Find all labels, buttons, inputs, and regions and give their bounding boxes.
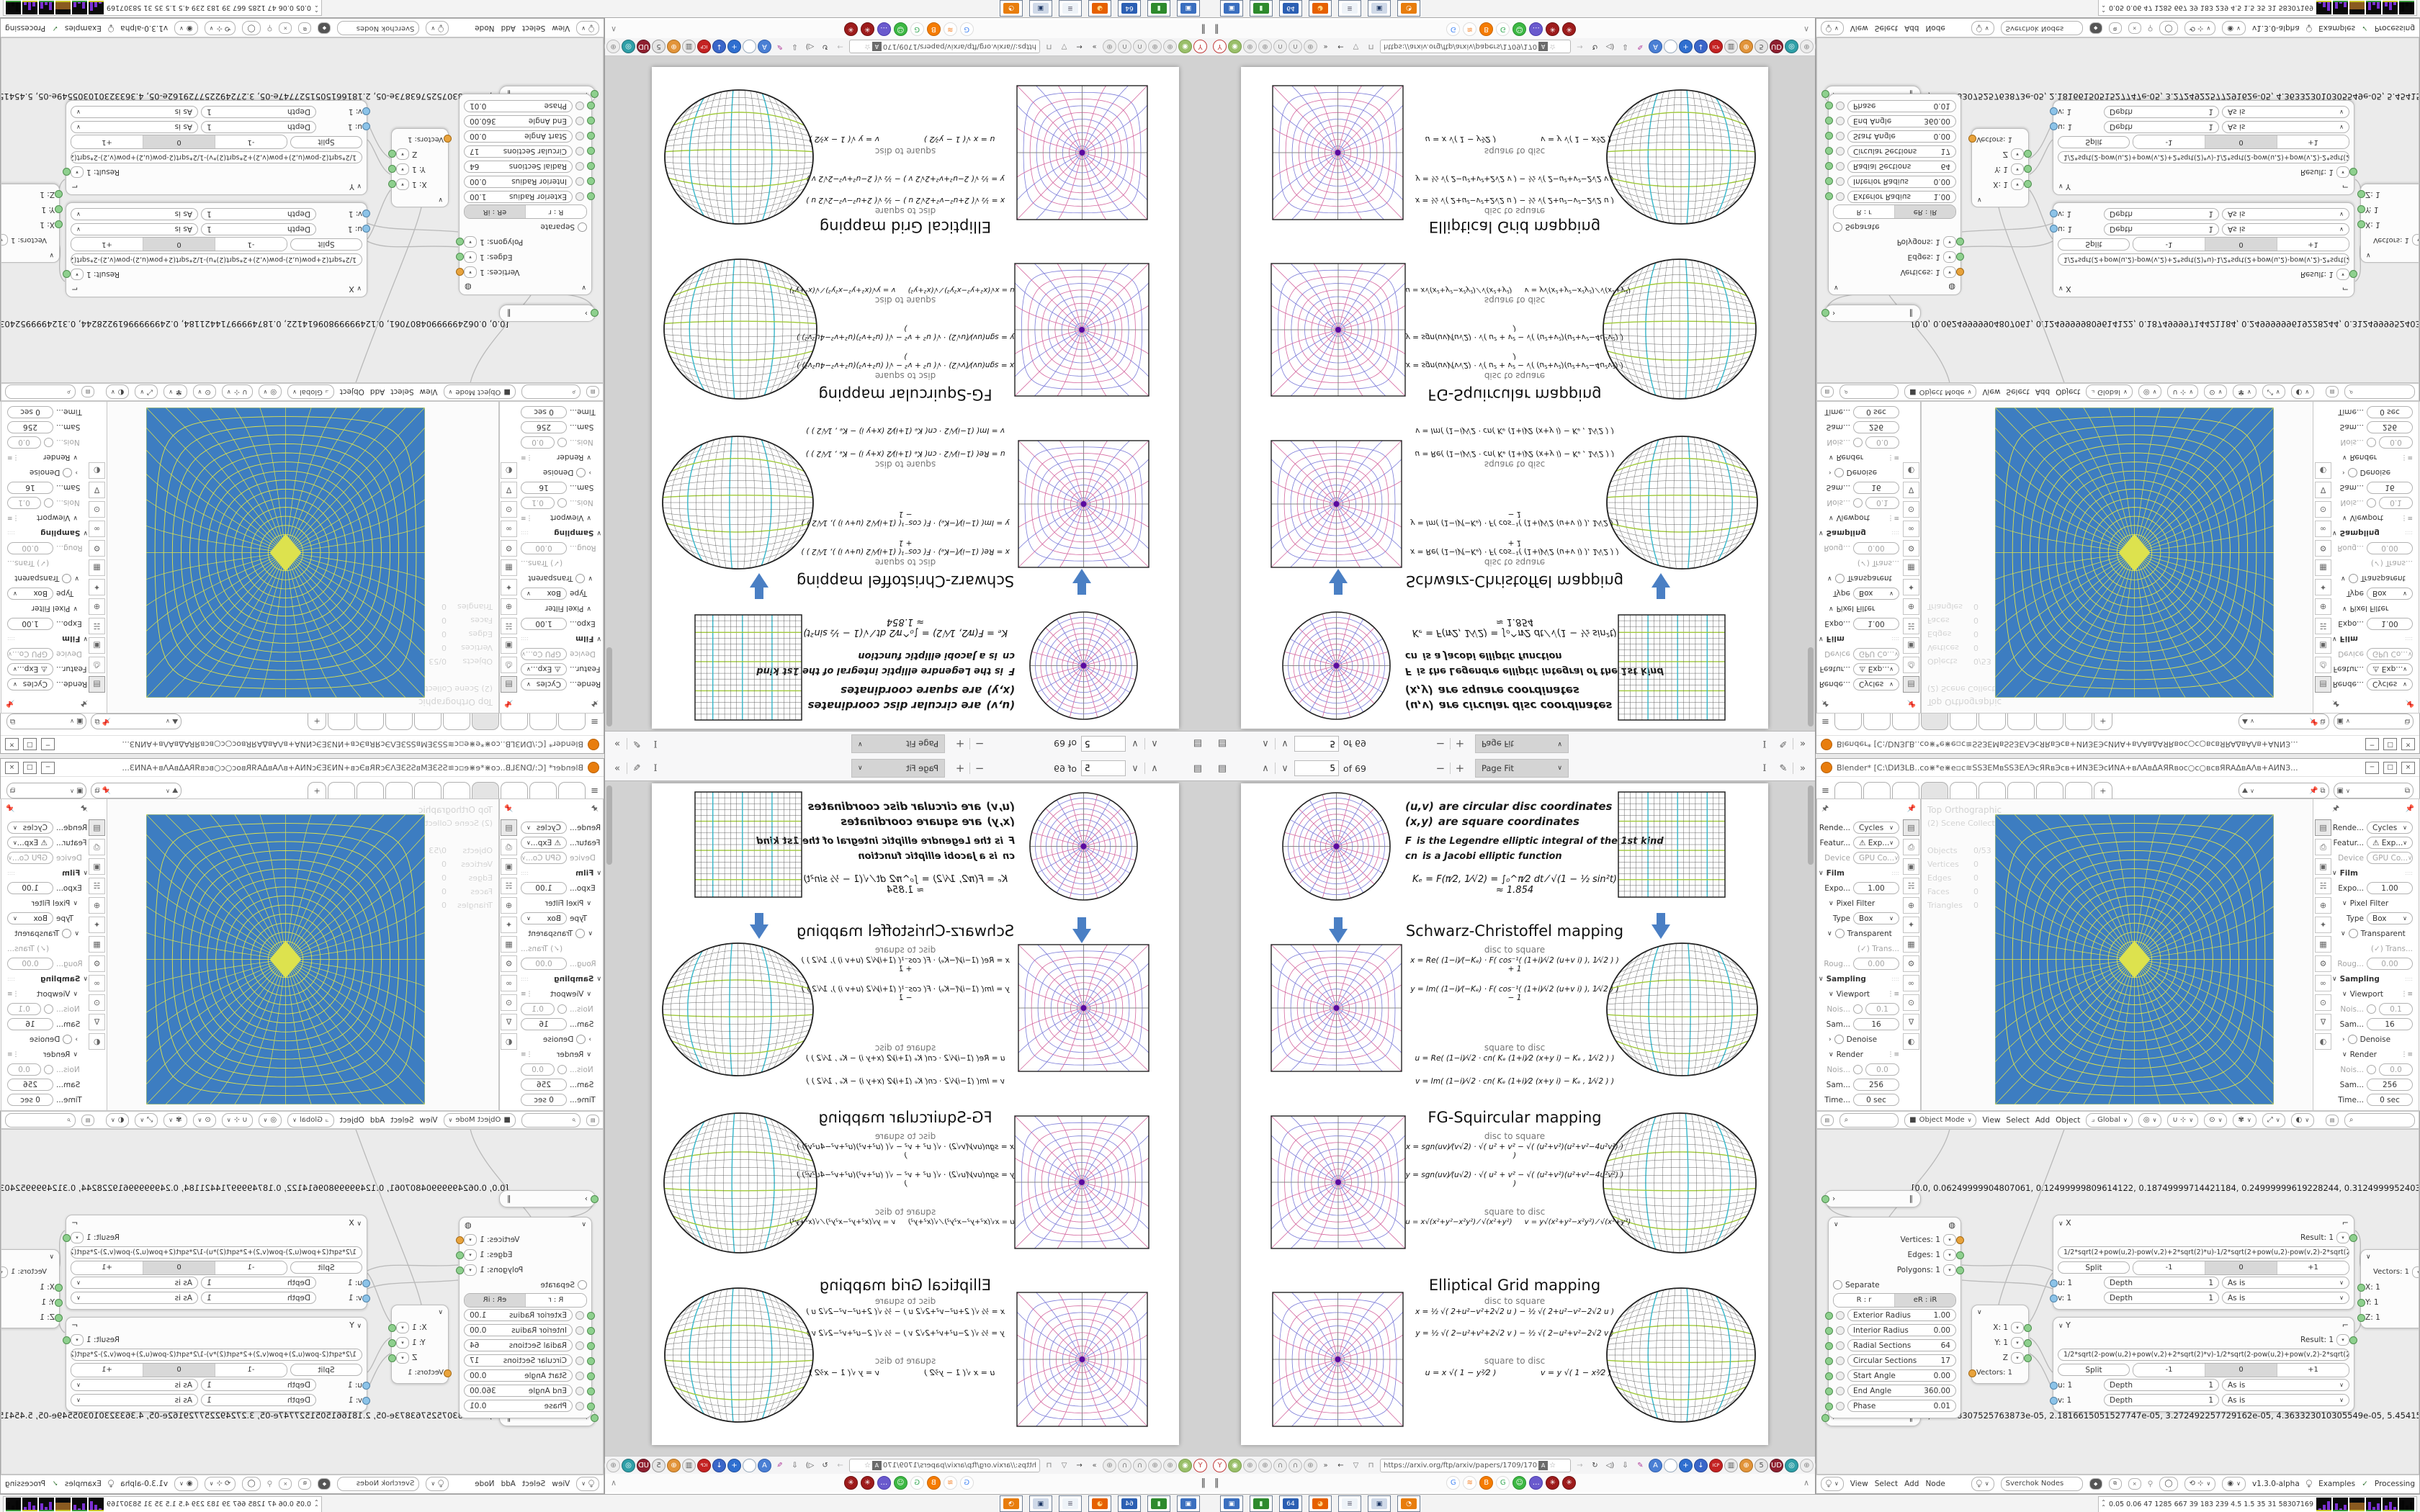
firefox-app-icon[interactable]: ◕ bbox=[1088, 0, 1111, 17]
trash-icon[interactable]: ▥ bbox=[1724, 40, 1738, 54]
annotate-tool-icon[interactable]: ✎ bbox=[1774, 760, 1793, 777]
url-bar[interactable]: https://arxiv.org/ftp/arxiv/papers/1709/… bbox=[849, 1459, 1040, 1472]
properties-tab-icon[interactable]: ∇ bbox=[501, 482, 517, 498]
prop-row-denoise[interactable]: ›Denoise bbox=[7, 465, 88, 480]
green-utility-app-icon[interactable]: ▮ bbox=[1250, 1495, 1273, 1512]
properties-tab-icon[interactable]: ▦ bbox=[1903, 936, 1919, 953]
prop-row-denoise[interactable]: ›Denoise bbox=[7, 1032, 88, 1047]
pin-icon[interactable]: ⚲ bbox=[267, 24, 273, 33]
oval-addon-icon[interactable] bbox=[743, 1459, 756, 1472]
workspace-tab[interactable] bbox=[1834, 782, 1862, 798]
reader-mode-icon[interactable]: A bbox=[1538, 42, 1548, 52]
prop-row-featur[interactable]: Featur...⚠ Exp...∨ bbox=[2332, 662, 2413, 677]
slider-end-angle[interactable]: End Angle360.00 bbox=[460, 1383, 591, 1398]
properties-tab-icon[interactable]: ⊕ bbox=[501, 897, 517, 914]
prop-row-pixelfilter[interactable]: ∨Pixel Filter bbox=[521, 601, 601, 616]
pin-icon[interactable]: 📌 bbox=[504, 805, 513, 813]
globe-gray-icon[interactable]: ⊕ bbox=[1800, 40, 1814, 54]
properties-tab-icon[interactable]: ☵ bbox=[1903, 618, 1919, 634]
collapsed-node[interactable]: ›‖ bbox=[1824, 1190, 1921, 1207]
properties-tab-icon[interactable]: ∞ bbox=[501, 975, 517, 991]
vector-in-node-right[interactable]: ∨ Vectors: 1 ▾ X: 1Y: 1Z: 1 bbox=[2360, 1249, 2419, 1328]
prop-row-render[interactable]: ∨Render⋮≡ bbox=[7, 1047, 88, 1062]
prop-row-sam[interactable]: Sam...16 bbox=[521, 480, 601, 495]
prop-row-film[interactable]: ∨Film:::: bbox=[7, 865, 88, 881]
prop-row-featur[interactable]: Featur...⚠ Exp...∨ bbox=[521, 835, 601, 850]
slider-end-angle[interactable]: End Angle360.00 bbox=[1829, 1383, 1960, 1398]
prop-row-denoise[interactable]: ›Denoise bbox=[521, 1032, 601, 1047]
zoom-in-button[interactable]: + bbox=[951, 760, 969, 777]
display-app-icon[interactable]: ▣ bbox=[1177, 1495, 1200, 1512]
workspace-tab[interactable] bbox=[1921, 782, 1948, 798]
prop-row-transparent[interactable]: ∨Transparent bbox=[1819, 571, 1899, 586]
vector-in-node-right[interactable]: ∨ Vectors: 1 ▾ X: 1Y: 1Z: 1 bbox=[1, 184, 60, 263]
workspace-tab[interactable] bbox=[357, 782, 384, 798]
prop-row-nois[interactable]: Nois...0.0 bbox=[521, 1062, 601, 1077]
slider-start-angle[interactable]: Start Angle0.00 bbox=[460, 1368, 591, 1383]
orientation-selector[interactable]: ⟓ Global∨ bbox=[287, 385, 334, 400]
vector-input[interactable]: Z: 1 bbox=[1, 187, 59, 202]
gizmo-toggle[interactable]: ✾∨ bbox=[2233, 385, 2256, 400]
prop-row-denoise[interactable]: ›Denoise bbox=[1819, 465, 1899, 480]
blender-title-bar[interactable]: Blender* [C:\DИЗLB..cо⋇*е⋇е▫c≋SSЗEMвSSЗE… bbox=[1816, 735, 2419, 753]
orientation-selector[interactable]: ⟓ Global∨ bbox=[2086, 385, 2133, 400]
chat-bookmark-icon[interactable]: … bbox=[877, 22, 891, 36]
shading-toggle[interactable]: ◐∨ bbox=[2291, 1113, 2315, 1128]
prop-row-sampling[interactable]: ∨Sampling:::: bbox=[521, 971, 601, 986]
pin-icon[interactable]: ⚲ bbox=[267, 1480, 273, 1488]
headset-icon[interactable]: ∩ bbox=[1133, 1459, 1147, 1472]
globe-icon-3[interactable]: ⊕ bbox=[1103, 40, 1116, 54]
globe-icon-2[interactable]: ⊕ bbox=[1148, 1459, 1162, 1472]
properties-tab-icon[interactable]: ⊙ bbox=[2315, 994, 2331, 1011]
proportional-edit-toggle[interactable]: ⊙∨ bbox=[193, 1113, 216, 1128]
shield-icon[interactable]: ▽ bbox=[1349, 1459, 1363, 1472]
prop-row-time[interactable]: Time...0 sec bbox=[521, 405, 601, 420]
zoom-select[interactable]: Page Fit∨ bbox=[1475, 734, 1569, 753]
prop-row-sampling[interactable]: ∨Sampling:::: bbox=[2332, 971, 2413, 986]
prop-row-type[interactable]: TypeBox∨ bbox=[7, 911, 88, 926]
fake-user-icon[interactable]: ◆ bbox=[2089, 23, 2102, 35]
search-field[interactable]: ⌕ bbox=[2344, 385, 2415, 400]
prop-row-sam[interactable]: Sam...256 bbox=[1819, 420, 1899, 435]
brush-icon[interactable]: ✎ bbox=[1633, 1459, 1647, 1472]
system-monitor-tray[interactable]: ⌃⌃ 0.05 0.06 47 1285 667 39 183 239 4.5 … bbox=[3, 1496, 322, 1512]
node-output-polygons[interactable]: Polygons: 1▾ bbox=[460, 1262, 591, 1277]
slider-exterior-radius[interactable]: Exterior Radius1.00 bbox=[460, 189, 591, 204]
copy-icon[interactable]: ⧉ bbox=[2109, 23, 2122, 35]
prop-row-denoise[interactable]: ›Denoise bbox=[2332, 1032, 2413, 1047]
prop-row-device[interactable]: DeviceGPU Co...∨ bbox=[7, 850, 88, 865]
bookmark-star-icon[interactable]: ☆ bbox=[1549, 43, 1556, 51]
prop-row-sam[interactable]: Sam...16 bbox=[2332, 1017, 2413, 1032]
system-monitor-tray[interactable]: ⌃⌃ 0.05 0.06 47 1285 667 39 183 239 4.5 … bbox=[3, 0, 322, 16]
collapsed-node[interactable]: ›‖ bbox=[1824, 305, 1921, 322]
prop-row-rende[interactable]: Rende...Cycles∨ bbox=[7, 677, 88, 692]
green-utility-app-icon[interactable]: ▮ bbox=[1147, 1495, 1170, 1512]
prop-row-nois[interactable]: Nois...0.1 bbox=[521, 495, 601, 510]
prop-row-sampling[interactable]: ∨Sampling:::: bbox=[7, 971, 88, 986]
vector-in-node[interactable]: ∨ X: 1▾Y: 1▾Z▾ Vectors: 1 bbox=[391, 128, 449, 207]
workspace-tab[interactable] bbox=[443, 782, 470, 798]
properties-tab-icon[interactable]: ✦ bbox=[501, 579, 517, 595]
prop-row-render[interactable]: ∨Render⋮≡ bbox=[2332, 1047, 2413, 1062]
menu-view[interactable]: View bbox=[420, 1116, 438, 1125]
properties-tab-icon[interactable]: ✦ bbox=[2315, 917, 2331, 933]
snap-icon[interactable]: ⟲ ⊹∨ bbox=[205, 22, 236, 36]
collapse-chevron-icon[interactable]: ∧ bbox=[1803, 24, 1809, 34]
slider-exterior-radius[interactable]: Exterior Radius1.00 bbox=[1829, 189, 1960, 204]
menu-add[interactable]: Add bbox=[501, 24, 516, 33]
minimize-button[interactable]: ─ bbox=[41, 739, 55, 751]
gear-flower-icon-2[interactable]: ✳ bbox=[1562, 1476, 1576, 1490]
properties-tab-icon[interactable]: ⚙ bbox=[501, 955, 517, 972]
globe-orange-icon[interactable]: ⊕ bbox=[667, 40, 681, 54]
green-addon-icon[interactable]: ◉ bbox=[1228, 1459, 1242, 1472]
properties-tab-icon[interactable]: ◐ bbox=[2315, 462, 2331, 479]
properties-tab-icon[interactable]: ▤ bbox=[1903, 676, 1919, 693]
text-select-tool-icon[interactable]: I bbox=[646, 735, 665, 752]
copy-icon[interactable]: ⧉ bbox=[94, 787, 99, 795]
prop-row-time[interactable]: Time...0 sec bbox=[7, 405, 88, 420]
slider-exterior-radius[interactable]: Exterior Radius1.00 bbox=[460, 1308, 591, 1323]
torus-mode-switch[interactable]: R : r eR : iR bbox=[464, 205, 587, 220]
properties-tab-icon[interactable]: ▣ bbox=[2315, 637, 2331, 654]
menu-view[interactable]: View bbox=[552, 1480, 570, 1488]
add-workspace-tab[interactable]: + bbox=[2094, 782, 2112, 798]
prop-row-device[interactable]: DeviceGPU Co...∨ bbox=[521, 647, 601, 662]
speaker-icon[interactable]: ◁) bbox=[803, 1459, 817, 1472]
prop-row-time[interactable]: Time...0 sec bbox=[521, 1092, 601, 1107]
prop-row-viewport[interactable]: ∨Viewport⋮≡ bbox=[521, 986, 601, 1002]
vector-input[interactable]: Y: 1 bbox=[1, 202, 59, 217]
zoom-in-button[interactable]: + bbox=[1451, 760, 1469, 777]
properties-tab-icon[interactable]: ⊙ bbox=[2315, 501, 2331, 518]
translate-icon[interactable]: A bbox=[758, 1459, 771, 1472]
window-app-icon[interactable]: ▣ bbox=[1368, 0, 1391, 17]
prop-row-featur[interactable]: Featur...⚠ Exp...∨ bbox=[2332, 835, 2413, 850]
workspace-tab[interactable] bbox=[385, 782, 413, 798]
tree-select-icon[interactable]: ⧬∨ bbox=[426, 1477, 449, 1491]
smiley-bookmark-icon[interactable]: ☺ bbox=[1512, 1476, 1526, 1490]
ud-shield-icon[interactable]: UD bbox=[637, 40, 650, 54]
oval-addon-icon[interactable] bbox=[1664, 1459, 1677, 1472]
formula-node-y[interactable]: ∨ Y⌐Result: 1▾1/2*sqrt(2-pow(u,2)+pow(v,… bbox=[2053, 100, 2354, 195]
slider-phase[interactable]: Phase0.01 bbox=[1829, 99, 1960, 114]
overlays-toggle[interactable]: ⤢∨ bbox=[2262, 1113, 2285, 1128]
torus-node[interactable]: ∨◍ Vertices: 1▾Edges: 1▾Polygons: 1▾ Sep… bbox=[459, 94, 592, 295]
teal-addon-icon[interactable]: ◎ bbox=[622, 1459, 635, 1472]
window-app-icon[interactable]: ▣ bbox=[1368, 1495, 1391, 1512]
properties-tab-icon[interactable]: ▣ bbox=[89, 858, 105, 875]
properties-tab-icon[interactable]: ⎙ bbox=[501, 657, 517, 673]
prop-row-pixelfilter[interactable]: ∨Pixel Filter bbox=[7, 896, 88, 911]
translate-icon[interactable]: A bbox=[1649, 1459, 1662, 1472]
vector-input[interactable]: X: 1 bbox=[2361, 217, 2419, 233]
firefox-app-icon[interactable]: ◕ bbox=[1309, 1495, 1332, 1512]
prop-row-trans[interactable]: (✓) Trans... bbox=[1819, 941, 1899, 956]
slider-start-angle[interactable]: Start Angle0.00 bbox=[1829, 1368, 1960, 1383]
pivot-selector[interactable]: ◎∨ bbox=[259, 385, 282, 400]
prop-row-type[interactable]: TypeBox∨ bbox=[7, 586, 88, 601]
pin-icon[interactable]: 📌 bbox=[2406, 699, 2414, 707]
add-workspace-tab[interactable]: + bbox=[308, 714, 326, 730]
properties-tab-icon[interactable]: ▤ bbox=[501, 819, 517, 836]
globe-icon[interactable]: ⊕ bbox=[1243, 1459, 1257, 1472]
view-layer-selector[interactable]: ▣∨ ⧉ bbox=[6, 714, 86, 729]
prop-row-nois[interactable]: Nois...0.0 bbox=[1819, 435, 1899, 450]
properties-tab-icon[interactable]: ∇ bbox=[89, 482, 105, 498]
vector-in-input[interactable]: Y: 1▾ bbox=[1972, 162, 2028, 177]
menu-select[interactable]: Select bbox=[522, 1480, 545, 1488]
properties-tab-icon[interactable]: ◐ bbox=[501, 1033, 517, 1050]
workspace-tab[interactable] bbox=[1921, 714, 1948, 730]
vector-in-input[interactable]: Z▾ bbox=[392, 1350, 448, 1365]
sverchok-node-editor[interactable]: [0.0, 0.06249999904807061, 0.12499999809… bbox=[1, 37, 604, 383]
down-addon-icon[interactable]: ↓ bbox=[712, 1459, 726, 1472]
editor-type-icon[interactable]: ▤ bbox=[81, 1115, 94, 1126]
examples-menu[interactable]: Examples bbox=[65, 24, 102, 33]
search-field[interactable]: ⌕ bbox=[521, 1113, 581, 1128]
globe-icon[interactable]: ⊕ bbox=[1163, 1459, 1177, 1472]
page-number-input[interactable] bbox=[1294, 736, 1339, 752]
node-output-edges[interactable]: Edges: 1▾ bbox=[1829, 250, 1960, 265]
workspace-tab[interactable] bbox=[529, 782, 557, 798]
prop-row-viewport[interactable]: ∨Viewport⋮≡ bbox=[7, 510, 88, 526]
down-addon-icon[interactable]: ↓ bbox=[1694, 1459, 1708, 1472]
prop-row-transparent[interactable]: ∨Transparent bbox=[7, 926, 88, 941]
workspace-tab[interactable] bbox=[1950, 782, 1977, 798]
menu-select[interactable]: Select bbox=[1875, 1480, 1898, 1488]
properties-tab-icon[interactable]: ⊙ bbox=[89, 501, 105, 518]
blogger-bookmark-icon[interactable]: B bbox=[927, 1476, 941, 1490]
globe-icon-3[interactable]: ⊕ bbox=[1103, 1459, 1116, 1472]
pause-icon[interactable]: ‖ bbox=[1201, 1477, 1206, 1488]
shield-icon[interactable]: ▽ bbox=[1057, 1459, 1071, 1472]
prop-row-nois[interactable]: Nois...0.1 bbox=[7, 1002, 88, 1017]
vector-input[interactable]: Z: 1 bbox=[2361, 187, 2419, 202]
properties-tab-icon[interactable]: ⊙ bbox=[89, 994, 105, 1011]
globe-gray-icon[interactable]: ⊕ bbox=[606, 40, 620, 54]
reader-mode-icon[interactable]: A bbox=[1538, 1461, 1548, 1470]
ud-shield-icon[interactable]: UD bbox=[637, 1459, 650, 1472]
workspace-tab[interactable] bbox=[1863, 714, 1891, 730]
bookmark-star-icon[interactable]: ☆ bbox=[864, 1462, 871, 1470]
properties-tab-icon[interactable]: ∇ bbox=[2315, 482, 2331, 498]
workspace-tab[interactable] bbox=[1834, 714, 1862, 730]
minimize-button[interactable]: ─ bbox=[2365, 739, 2379, 751]
properties-tab-icon[interactable]: ⚙ bbox=[501, 540, 517, 557]
overlay-icon[interactable]: ◉∨ bbox=[174, 22, 198, 36]
scene-selector[interactable]: ⛰∨ 📌 ⧉ bbox=[2238, 783, 2329, 798]
prop-row-render[interactable]: ∨Render⋮≡ bbox=[1819, 1047, 1899, 1062]
overflow-icon[interactable]: » bbox=[1319, 40, 1332, 54]
prop-row-featur[interactable]: Featur...⚠ Exp...∨ bbox=[1819, 662, 1899, 677]
collapse-chevron-icon[interactable]: ∧ bbox=[611, 1478, 617, 1488]
overlays-toggle[interactable]: ⤢∨ bbox=[135, 1113, 158, 1128]
node-output-polygons[interactable]: Polygons: 1▾ bbox=[1829, 235, 1960, 250]
properties-tab-icon[interactable]: ⊕ bbox=[2315, 897, 2331, 914]
down-addon-icon[interactable]: ↓ bbox=[1694, 40, 1708, 54]
smiley-bookmark-icon[interactable]: ☺ bbox=[894, 1476, 907, 1490]
trash-icon[interactable]: ▥ bbox=[682, 40, 696, 54]
editor-type-icon[interactable]: ⧬∨ bbox=[1821, 1477, 1844, 1491]
overlay-icon[interactable]: ◉∨ bbox=[2222, 1477, 2246, 1491]
snap-icon[interactable]: ⟲ ⊹∨ bbox=[2184, 22, 2216, 36]
prop-row-sam[interactable]: Sam...16 bbox=[1819, 1017, 1899, 1032]
prop-row-sampling[interactable]: ∨Sampling:::: bbox=[2332, 526, 2413, 541]
close-button[interactable]: × bbox=[5, 739, 19, 751]
prop-row-transparent[interactable]: ∨Transparent bbox=[521, 926, 601, 941]
headset-icon-2[interactable]: ∩ bbox=[1118, 1459, 1131, 1472]
menu-object[interactable]: Object bbox=[2056, 1116, 2080, 1125]
back-icon[interactable]: ← bbox=[1072, 40, 1086, 54]
zoom-out-button[interactable]: − bbox=[1431, 735, 1450, 752]
globe-icon-2[interactable]: ⊕ bbox=[1258, 40, 1272, 54]
prop-row-expo[interactable]: Expo...1.00 bbox=[7, 881, 88, 896]
editor-type-icon[interactable]: ⧬∨ bbox=[1821, 22, 1844, 36]
properties-tab-icon[interactable]: ∞ bbox=[2315, 521, 2331, 537]
y-pin-icon[interactable]: Y bbox=[1213, 40, 1227, 54]
headset-icon[interactable]: ∩ bbox=[1273, 40, 1287, 54]
minimize-button[interactable]: ─ bbox=[41, 762, 55, 774]
prop-row-pixelfilter[interactable]: ∨Pixel Filter bbox=[2332, 896, 2413, 911]
overflow-icon[interactable]: » bbox=[1088, 40, 1101, 54]
blender-title-bar[interactable]: Blender* [C:\DИЗLB..cо⋇*е⋇е▫c≋SSЗEMвSSЗE… bbox=[1, 759, 604, 777]
tree-select-icon[interactable]: ⧬∨ bbox=[1971, 1477, 1994, 1491]
workspace-tab[interactable] bbox=[328, 714, 355, 730]
properties-tab-icon[interactable]: ⊕ bbox=[1903, 897, 1919, 914]
notepad-app-icon[interactable]: ≣ bbox=[1338, 1495, 1361, 1512]
add-workspace-tab[interactable]: + bbox=[2094, 714, 2112, 730]
gear-flower-icon-2[interactable]: ✳ bbox=[844, 1476, 858, 1490]
copy-icon[interactable]: ⧉ bbox=[2109, 1478, 2122, 1490]
workspace-tab[interactable] bbox=[414, 714, 442, 730]
zoom-out-button[interactable]: − bbox=[1431, 760, 1450, 777]
examples-menu[interactable]: Examples bbox=[2318, 1480, 2355, 1488]
menu-node[interactable]: Node bbox=[475, 24, 494, 33]
icp-addon-icon[interactable]: ICP bbox=[1709, 1459, 1723, 1472]
icp-addon-icon[interactable]: ICP bbox=[1709, 40, 1723, 54]
sverchok-node-editor[interactable]: [0.0, 0.06249999904807061, 0.12499999809… bbox=[1, 1129, 604, 1475]
close-button[interactable]: × bbox=[5, 762, 19, 774]
sverchok-node-editor[interactable]: [0.0, 0.06249999904807061, 0.12499999809… bbox=[1816, 37, 2419, 383]
prop-row-device[interactable]: DeviceGPU Co...∨ bbox=[2332, 850, 2413, 865]
prop-row-viewport[interactable]: ∨Viewport⋮≡ bbox=[1819, 510, 1899, 526]
prop-row-rende[interactable]: Rende...Cycles∨ bbox=[1819, 820, 1899, 835]
menu-add[interactable]: Add bbox=[370, 1116, 385, 1125]
menu-add[interactable]: Add bbox=[2035, 1116, 2050, 1125]
mode-selector[interactable]: ■ Object Mode∨ bbox=[1904, 385, 1976, 400]
prop-row-transparent[interactable]: ∨Transparent bbox=[2332, 571, 2413, 586]
y-pin-icon[interactable]: Y bbox=[1213, 1459, 1227, 1472]
translate-icon[interactable]: A bbox=[1649, 40, 1662, 54]
shield-icon[interactable]: ▽ bbox=[1057, 40, 1071, 54]
prop-row-trans[interactable]: (✓) Trans... bbox=[7, 941, 88, 956]
pivot-selector[interactable]: ◎∨ bbox=[2138, 1113, 2162, 1128]
properties-tab-icon[interactable]: ☵ bbox=[1903, 878, 1919, 894]
properties-tab-icon[interactable]: ⊕ bbox=[89, 897, 105, 914]
google2-bookmark-icon[interactable]: G bbox=[1496, 22, 1510, 36]
properties-tab-icon[interactable]: ⚙ bbox=[89, 540, 105, 557]
copy-icon[interactable]: ⧉ bbox=[2320, 787, 2325, 795]
blogger-bookmark-icon[interactable]: B bbox=[927, 22, 941, 36]
vector-input[interactable]: Y: 1 bbox=[2361, 1295, 2419, 1310]
y-pin-icon[interactable]: Y bbox=[1193, 1459, 1207, 1472]
vector-in-node-right[interactable]: ∨ Vectors: 1 ▾ X: 1Y: 1Z: 1 bbox=[2360, 184, 2419, 263]
slider-phase[interactable]: Phase0.01 bbox=[460, 99, 591, 114]
node-output-vertices[interactable]: Vertices: 1▾ bbox=[460, 1232, 591, 1247]
slider-interior-radius[interactable]: Interior Radius0.00 bbox=[460, 1323, 591, 1338]
overlays-toggle[interactable]: ⤢∨ bbox=[135, 385, 158, 400]
properties-tab-icon[interactable]: ◐ bbox=[501, 462, 517, 479]
slider-phase[interactable]: Phase0.01 bbox=[460, 1398, 591, 1413]
prop-row-sam[interactable]: Sam...16 bbox=[2332, 480, 2413, 495]
bookmark-star-icon[interactable]: ☆ bbox=[864, 43, 871, 51]
back-icon[interactable]: ← bbox=[1072, 1459, 1086, 1472]
reroute-icon[interactable]: ◯ bbox=[2159, 1477, 2177, 1491]
workspace-tab[interactable] bbox=[443, 714, 470, 730]
prop-row-denoise[interactable]: ›Denoise bbox=[2332, 465, 2413, 480]
ud-shield-icon[interactable]: UD bbox=[1770, 1459, 1783, 1472]
shading-toggle[interactable]: ◐∨ bbox=[106, 385, 130, 400]
editor-type-icon[interactable]: ▤ bbox=[2326, 387, 2339, 398]
prop-row-pixelfilter[interactable]: ∨Pixel Filter bbox=[2332, 601, 2413, 616]
prop-row-device[interactable]: DeviceGPU Co...∨ bbox=[1819, 647, 1899, 662]
notepad-app-icon[interactable]: ≣ bbox=[1059, 1495, 1082, 1512]
properties-tab-icon[interactable]: ∞ bbox=[1903, 975, 1919, 991]
overlay-icon[interactable]: ◉∨ bbox=[2222, 22, 2246, 36]
tree-select-icon[interactable]: ⧬∨ bbox=[1971, 22, 1994, 36]
pin-icon[interactable]: 📌 bbox=[504, 699, 513, 707]
workspace-tab[interactable] bbox=[385, 714, 413, 730]
slider-end-angle[interactable]: End Angle360.00 bbox=[1829, 114, 1960, 129]
vector-in-input[interactable]: X: 1▾ bbox=[1972, 1320, 2028, 1335]
prop-row-time[interactable]: Time...0 sec bbox=[2332, 1092, 2413, 1107]
firefox-app-icon[interactable]: ◕ bbox=[1309, 0, 1332, 17]
properties-tab-icon[interactable]: ⚙ bbox=[2315, 540, 2331, 557]
torus-node[interactable]: ∨◍ Vertices: 1▾Edges: 1▾Polygons: 1▾ Sep… bbox=[1828, 1217, 1961, 1418]
search-field[interactable]: ⌕ bbox=[2344, 1113, 2415, 1128]
menu-add[interactable]: Add bbox=[1904, 1480, 1919, 1488]
prop-row-trans[interactable]: (✓) Trans... bbox=[521, 941, 601, 956]
slider-interior-radius[interactable]: Interior Radius0.00 bbox=[1829, 174, 1960, 189]
pause-icon[interactable]: ‖ bbox=[1201, 24, 1206, 35]
blogger-bookmark-icon[interactable]: B bbox=[1479, 22, 1493, 36]
menu-node[interactable]: Node bbox=[475, 1480, 494, 1488]
search-field[interactable]: ⌕ bbox=[5, 385, 76, 400]
node-output-edges[interactable]: Edges: 1▾ bbox=[460, 250, 591, 265]
pin-icon[interactable]: ⚲ bbox=[2148, 24, 2154, 33]
prop-row-type[interactable]: TypeBox∨ bbox=[2332, 911, 2413, 926]
floppy-64-app-icon[interactable]: 64 bbox=[1279, 1495, 1302, 1512]
five-box-icon[interactable]: 5 bbox=[1754, 1459, 1768, 1472]
prop-row-sam[interactable]: Sam...256 bbox=[2332, 420, 2413, 435]
url-bar[interactable]: https://arxiv.org/ftp/arxiv/papers/1709/… bbox=[1380, 40, 1571, 54]
properties-tab-icon[interactable]: ✦ bbox=[2315, 579, 2331, 595]
prop-row-sampling[interactable]: ∨Sampling:::: bbox=[1819, 971, 1899, 986]
prop-row-type[interactable]: TypeBox∨ bbox=[1819, 586, 1899, 601]
properties-tab-icon[interactable]: ⎙ bbox=[89, 657, 105, 673]
url-bar[interactable]: https://arxiv.org/ftp/arxiv/papers/1709/… bbox=[1380, 1459, 1571, 1472]
download-icon[interactable]: ⇩ bbox=[1618, 40, 1632, 54]
prop-row-device[interactable]: DeviceGPU Co...∨ bbox=[521, 850, 601, 865]
fake-user-icon[interactable]: ◆ bbox=[318, 1478, 331, 1490]
editor-type-icon[interactable]: ▤ bbox=[2326, 1115, 2339, 1126]
node-tree-name[interactable]: Sverchok Nodes bbox=[337, 22, 419, 36]
node-output-vertices[interactable]: Vertices: 1▾ bbox=[1829, 265, 1960, 280]
snap-toggle[interactable]: ∪ ⊹∨ bbox=[222, 385, 253, 400]
